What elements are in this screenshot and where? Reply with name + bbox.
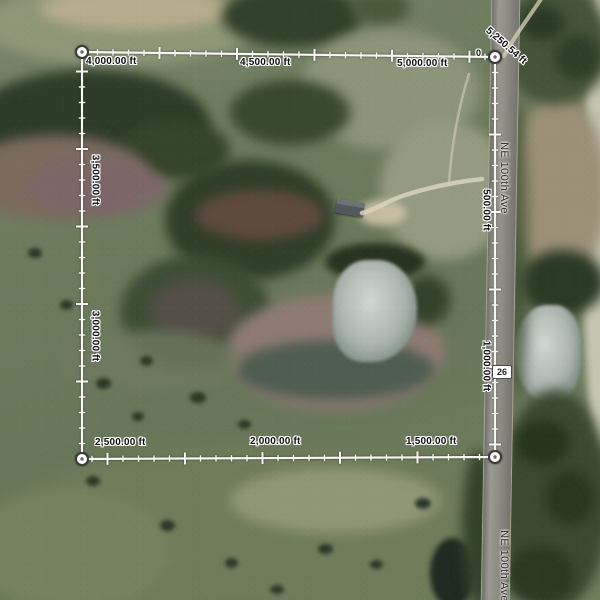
- measurement-label-bottom-3: 1,500.00 ft: [406, 436, 457, 447]
- vertex-center-dot: [80, 50, 83, 53]
- measurement-overlay: [0, 0, 600, 600]
- measurement-label-left-1: 3,500.00 ft: [90, 155, 101, 206]
- measurement-vertices: [76, 46, 501, 465]
- measurement-label-top-2: 4,500.00 ft: [240, 57, 291, 68]
- vertex-center-dot: [80, 457, 83, 460]
- vertex-center-dot: [493, 455, 496, 458]
- measurement-polygon: [82, 52, 495, 459]
- route-26-badge: 26: [492, 365, 512, 379]
- vertex-center-dot: [493, 55, 496, 58]
- measurement-label-right-2: 1,000.00 ft: [481, 341, 492, 392]
- road-name-label-lower: NE 100th Ave: [498, 530, 510, 600]
- measurement-label-left-2: 3,000.00 ft: [90, 311, 101, 362]
- measurement-ticks: [76, 47, 501, 465]
- measurement-label-bottom-2: 2,000.00 ft: [250, 436, 301, 447]
- measurement-label-right-1: 500.00 ft: [481, 189, 492, 231]
- measurement-label-top-3: 5,000.00 ft: [397, 58, 448, 69]
- measurement-label-top-1: 4,000.00 ft: [86, 56, 137, 67]
- measurement-label-bottom-1: 2,500.00 ft: [95, 437, 146, 448]
- road-name-label-upper: NE 100th Ave: [498, 142, 510, 214]
- map-canvas[interactable]: 4,000.00 ft 4,500.00 ft 5,000.00 ft 500.…: [0, 0, 600, 600]
- measurement-origin-label: 0: [476, 48, 481, 58]
